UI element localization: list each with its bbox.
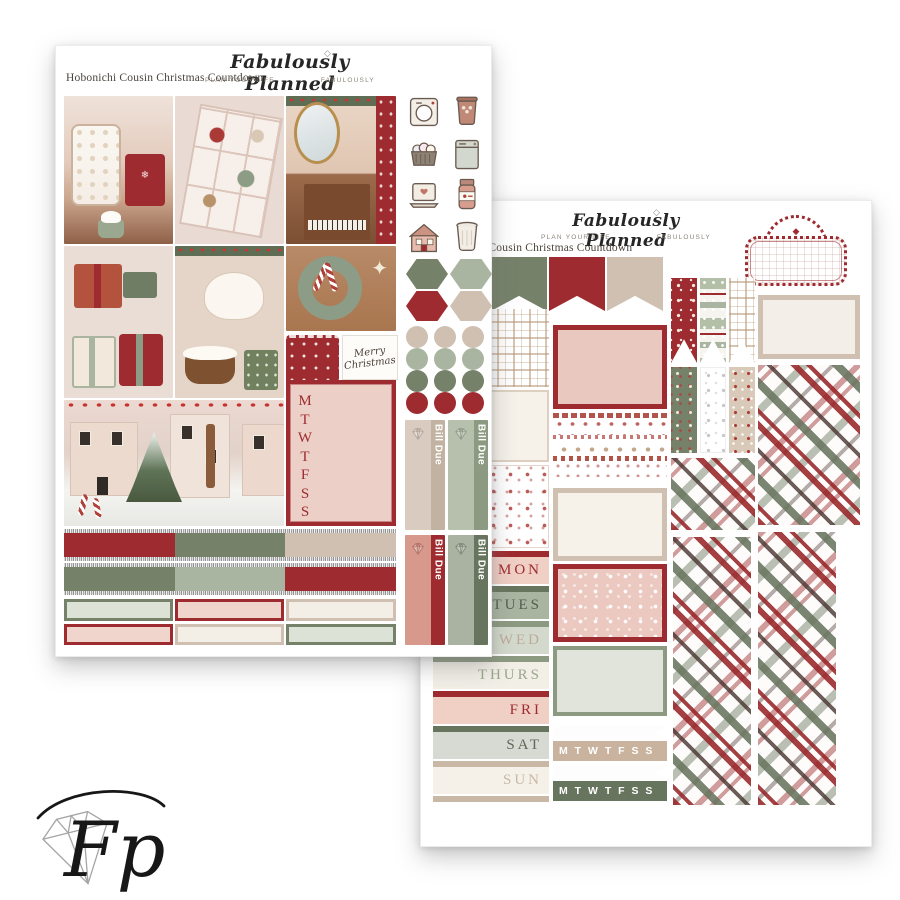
dot-sticker	[406, 370, 428, 392]
plaid-washi-strip	[758, 532, 836, 805]
window	[181, 425, 193, 440]
candy-tan-strip-sticker	[729, 367, 755, 453]
pattern-band	[553, 418, 667, 435]
snowflake-white-strip-sticker	[700, 367, 726, 453]
christmas-pudding	[185, 352, 235, 384]
photo-christmas-piano	[286, 96, 396, 244]
bill-due-label: Bill Due	[476, 420, 487, 530]
photo-christmas-candy-box	[175, 96, 284, 244]
dot-sticker	[434, 392, 456, 414]
weekday-letter: T	[297, 411, 313, 430]
gift-box	[72, 336, 116, 388]
photo-wreath-mug-candy-canes: ✦	[286, 246, 396, 331]
candy-cane	[92, 498, 102, 519]
door	[97, 477, 108, 495]
photo-snowy-christmas-street	[64, 400, 284, 526]
bill-due-body	[448, 535, 474, 645]
date-label-thurs: THURS	[433, 662, 549, 689]
product-image: Fabulously Planned ◇ PLAN YOUR LIFE FABU…	[0, 0, 900, 900]
red-curtain	[376, 96, 396, 244]
washi-strip-sampler	[64, 563, 396, 595]
flag-notch	[553, 725, 667, 741]
hexagon-sticker	[450, 259, 492, 289]
label-box-sticker	[175, 599, 284, 621]
red-mug: ❄	[125, 154, 165, 206]
dot-sticker	[406, 326, 428, 348]
trash-bin-icon	[448, 218, 486, 254]
bare-tree	[206, 424, 215, 488]
house	[170, 414, 230, 498]
weekday-letters: M T W T F S S	[553, 741, 667, 761]
brand-tagline-right: FABULOUSLY	[657, 234, 711, 241]
dishwasher-icon	[448, 136, 486, 172]
week-header-flag-sticker: M T W T F S S	[553, 765, 667, 801]
hexagon-sticker	[406, 259, 448, 289]
fair-isle-strip-sticker	[700, 278, 726, 363]
washing-machine-icon	[405, 94, 443, 130]
weekday-letter: T	[297, 448, 313, 467]
green-mug	[244, 350, 278, 390]
candy-green-strip-sticker	[671, 367, 697, 453]
marquee-panel	[745, 236, 847, 286]
diamond-icon	[409, 541, 427, 557]
laundry-basket-icon	[405, 136, 443, 172]
dot-sticker	[462, 326, 484, 348]
week-header-flag-sticker: M T W T F S S	[553, 725, 667, 761]
medicine-bottle-icon	[448, 176, 486, 212]
dot-sticker	[406, 392, 428, 414]
brand-tagline-left: PLAN YOUR LIFE	[541, 234, 611, 241]
snowflake-red-strip-sticker	[671, 278, 697, 363]
hexagon-sticker	[406, 291, 448, 321]
sticker-sheet-left: Fabulously Planned ◇ PLAN YOUR LIFE FABU…	[55, 45, 492, 657]
brand-tagline-right: FABULOUSLY	[321, 77, 375, 84]
house	[70, 422, 138, 496]
diamond-icon: ◇	[653, 207, 660, 218]
house	[242, 424, 284, 496]
mirror	[294, 102, 340, 164]
star-icon: ✦	[371, 256, 388, 281]
label-box-sticker	[175, 624, 284, 645]
pennant-flag-sticker	[491, 257, 547, 311]
window	[79, 431, 91, 446]
tan-plaid-strip-sticker	[729, 278, 755, 363]
bill-due-band: Bill Due	[431, 535, 445, 645]
diamond-icon	[452, 426, 470, 442]
plaid-panel-sticker	[758, 365, 860, 525]
garland	[175, 246, 284, 256]
hexagon-sticker	[450, 291, 492, 321]
fair-isle-pattern-sticker	[553, 413, 667, 485]
sheet-title: Hobonichi Cousin Christmas Countdown	[66, 72, 263, 84]
weekday-letter-column: M T W T F S S	[297, 392, 313, 522]
knit-sweater-sticker	[286, 335, 339, 384]
weekday-letter: W	[297, 429, 313, 448]
beige-border-box-sticker	[553, 488, 667, 561]
photo-cookie-jar-and-cocoa: ❄	[64, 96, 173, 244]
washi-strip-sampler	[64, 529, 396, 561]
glitter-edge	[64, 563, 396, 567]
weekday-letter: S	[297, 485, 313, 504]
garland	[286, 96, 376, 106]
bill-due-label: Bill Due	[476, 535, 487, 645]
gift-box	[119, 334, 163, 386]
weekday-letter: S	[297, 503, 313, 522]
candy-pink-box-sticker	[553, 564, 667, 642]
trash-can-icon	[448, 92, 486, 128]
candy-box	[179, 104, 283, 239]
dot-sticker	[434, 326, 456, 348]
dot-sticker	[462, 392, 484, 414]
piano	[304, 184, 370, 240]
pattern-band	[553, 461, 667, 477]
label-box-sticker	[286, 624, 396, 645]
watermark-initials: Fp	[62, 805, 165, 894]
string-lights	[64, 400, 284, 410]
diamond-icon: ◆	[793, 226, 800, 236]
gift-box	[74, 264, 122, 308]
gift-box	[123, 272, 157, 298]
plaid-square-sticker	[671, 458, 755, 530]
bill-due-sticker: Bill Due	[405, 535, 445, 645]
diamond-icon	[452, 541, 470, 557]
dot-sticker	[434, 370, 456, 392]
teapot	[204, 272, 264, 320]
bill-due-sticker: Bill Due	[448, 535, 488, 645]
marquee-date-cover-sticker: ◆	[745, 215, 847, 281]
tan-border-box-sticker	[758, 295, 860, 359]
window	[111, 431, 123, 446]
weekly-tracker-box-sticker: M T W T F S S	[286, 380, 396, 526]
house-icon	[405, 220, 443, 256]
plaid-washi-strip	[673, 537, 751, 805]
weekday-letter: M	[297, 392, 313, 411]
dot-sticker	[434, 348, 456, 370]
pennant-flag-sticker	[549, 257, 605, 311]
merry-christmas-sticker: Merry Christmas	[342, 335, 398, 380]
photo-pudding-and-teapot	[175, 246, 284, 398]
diamond-icon: ◇	[324, 48, 331, 59]
red-border-box-sticker	[553, 325, 667, 409]
bill-due-body	[448, 420, 474, 530]
window	[253, 435, 265, 450]
date-label-sat: SAT	[433, 732, 549, 759]
glitter-edge	[64, 529, 396, 533]
bill-due-label: Bill Due	[433, 420, 444, 530]
weekday-letter: F	[297, 466, 313, 485]
cupcake	[98, 220, 124, 238]
label-box-sticker	[64, 599, 173, 621]
laptop-icon	[405, 178, 443, 214]
date-label-fri: FRI	[433, 697, 549, 724]
bill-due-label: Bill Due	[433, 535, 444, 645]
flag-notch	[553, 765, 667, 781]
fabulously-planned-watermark: Fp	[12, 782, 192, 900]
label-box-sticker	[286, 599, 396, 621]
dot-sticker	[406, 348, 428, 370]
label-box-sticker	[64, 624, 173, 645]
bill-due-sticker: Bill Due	[405, 420, 445, 530]
bill-due-body	[405, 420, 431, 530]
sage-border-box-sticker	[553, 646, 667, 716]
bill-due-sticker: Bill Due	[448, 420, 488, 530]
bill-due-band: Bill Due	[431, 420, 445, 530]
pattern-band	[553, 439, 667, 456]
dot-sticker	[462, 370, 484, 392]
weekday-letters: M T W T F S S	[553, 781, 667, 801]
bill-due-band: Bill Due	[474, 535, 488, 645]
glitter-edge	[64, 557, 396, 561]
dot-sticker	[462, 348, 484, 370]
date-divider	[433, 796, 549, 802]
cookie-jar	[71, 124, 121, 206]
pennant-flag-sticker	[607, 257, 663, 311]
bill-due-band: Bill Due	[474, 420, 488, 530]
photo-christmas-presents	[64, 246, 173, 398]
candy-cane	[77, 494, 88, 517]
glitter-edge	[64, 591, 396, 595]
christmas-text: Christmas	[344, 354, 397, 371]
diamond-icon	[409, 426, 427, 442]
date-label-sun: SUN	[433, 767, 549, 794]
bill-due-body	[405, 535, 431, 645]
